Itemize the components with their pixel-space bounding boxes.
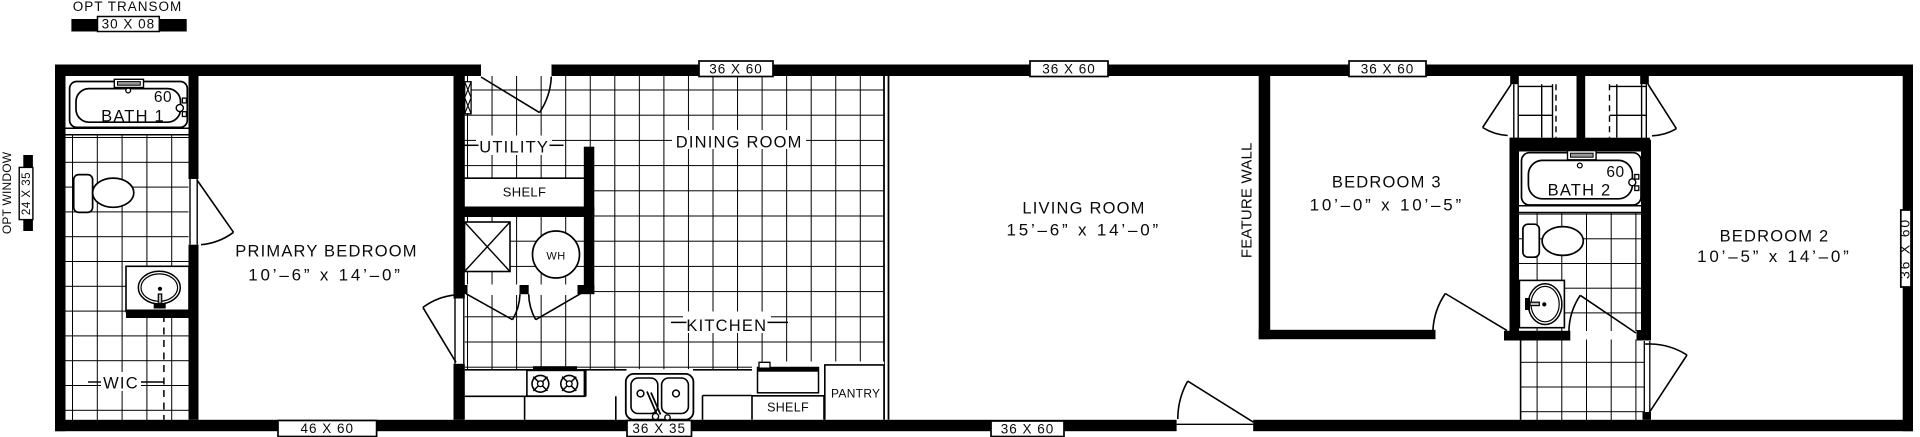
svg-text:SHELF: SHELF xyxy=(503,185,546,200)
svg-text:DINING ROOM: DINING ROOM xyxy=(676,134,803,152)
svg-text:36 X 60: 36 X 60 xyxy=(1042,62,1096,77)
svg-text:36 X 35: 36 X 35 xyxy=(632,421,686,436)
svg-text:OPT WINDOW: OPT WINDOW xyxy=(0,151,14,234)
svg-text:BEDROOM 2: BEDROOM 2 xyxy=(1720,228,1830,246)
svg-text:SHELF: SHELF xyxy=(767,401,809,415)
svg-text:FEATURE WALL: FEATURE WALL xyxy=(1239,142,1256,258)
svg-text:46 X 60: 46 X 60 xyxy=(301,421,355,436)
svg-text:36 X 60: 36 X 60 xyxy=(1001,422,1055,437)
svg-text:WH: WH xyxy=(546,251,565,263)
svg-text:15’–6” x 14’–0”: 15’–6” x 14’–0” xyxy=(1006,221,1160,240)
svg-text:UTILITY: UTILITY xyxy=(479,139,549,157)
svg-text:OPT TRANSOM: OPT TRANSOM xyxy=(73,0,183,14)
svg-text:PANTRY: PANTRY xyxy=(831,387,880,401)
svg-text:36 X 60: 36 X 60 xyxy=(709,62,763,77)
svg-text:10’–5” x 14’–0”: 10’–5” x 14’–0” xyxy=(1697,247,1851,266)
svg-text:60: 60 xyxy=(1606,164,1624,181)
svg-text:KITCHEN: KITCHEN xyxy=(686,317,767,335)
svg-text:BATH 1: BATH 1 xyxy=(101,108,165,126)
svg-text:PRIMARY BEDROOM: PRIMARY BEDROOM xyxy=(235,243,417,261)
svg-text:WIC: WIC xyxy=(103,375,139,393)
svg-text:10’–6” x 14’–0”: 10’–6” x 14’–0” xyxy=(248,266,402,285)
svg-text:60: 60 xyxy=(154,89,172,106)
svg-text:36 X 60: 36 X 60 xyxy=(1897,218,1913,279)
svg-text:BEDROOM 3: BEDROOM 3 xyxy=(1332,174,1442,192)
svg-text:LIVING ROOM: LIVING ROOM xyxy=(1022,200,1145,218)
svg-text:24 X 35: 24 X 35 xyxy=(21,172,33,215)
svg-text:30 X 08: 30 X 08 xyxy=(102,17,156,32)
svg-text:BATH 2: BATH 2 xyxy=(1548,182,1612,200)
svg-text:36 X 60: 36 X 60 xyxy=(1361,62,1415,77)
svg-text:10’–0” x 10’–5”: 10’–0” x 10’–5” xyxy=(1310,196,1464,215)
